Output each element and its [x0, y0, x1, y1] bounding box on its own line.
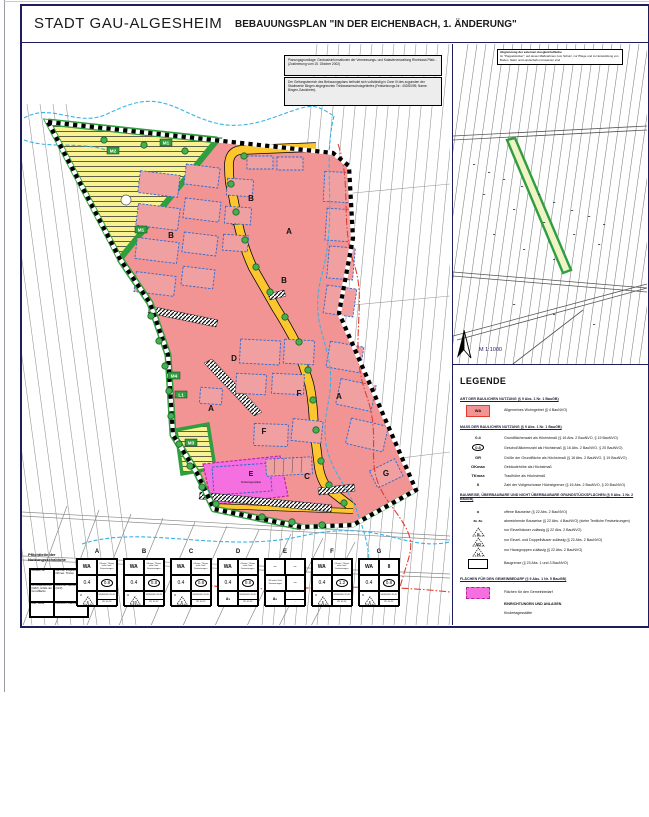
note-trinkwasserschutz: Der Geltungsbereich des Bebauungsplans b… [284, 77, 442, 106]
legend-title: LEGENDE [460, 376, 506, 386]
gemeinbedarf-label: Flächen für den Gemeinbedarf [504, 590, 644, 594]
l1-label: L1 [178, 392, 184, 397]
main-map: M2 M1 M1 M4 L1 M3 B B B A A A D F F C G … [22, 44, 450, 625]
wa-swatch: WA [466, 405, 490, 417]
zone-f2: F [262, 427, 267, 436]
abweichende-bauweise-label: abweichende Bauweise (§ 22 Abs. 4 BauNVO… [504, 519, 644, 523]
gfz-symbol: 0.8 [472, 444, 484, 451]
einzel-doppelhaus-triangle-icon: ED [472, 537, 485, 547]
svg-text:E: E [477, 532, 480, 536]
okmax-label: Gebäudehöhe als Höchstmaß [504, 465, 644, 469]
tkmax-symbol: TKmax [460, 473, 496, 478]
grz-symbol: 0.4 [460, 435, 496, 440]
inset-map-svg [453, 44, 647, 364]
okmax-symbol: OKmax [460, 464, 496, 469]
page-edge-line [4, 0, 5, 692]
haus-triangle: E [317, 596, 329, 605]
m4-label: M4 [171, 373, 178, 378]
note-planungsgrundlage: Planungsgrundlage: Geobasisinformationen… [284, 55, 442, 76]
inset-map: Abgrenzung der externen Ausgleichsfläche… [453, 44, 648, 365]
schablone-col-a: A WAOKmax / TKmax siehe Textl. Festsetzu… [76, 549, 118, 606]
offene-bauweise-symbol: o [460, 509, 496, 514]
kita-legend-label: Kindertagesstätte [504, 611, 644, 615]
svg-text:ED: ED [133, 600, 138, 604]
haus-triangle: E [82, 596, 94, 605]
grz-label: Grundflächenzahl als Höchstmaß (§ 16 Abs… [504, 436, 644, 440]
einzel-doppelhaus-label: nur Einzel- und Doppelhäuser zulässig (§… [504, 538, 644, 542]
svg-text:E: E [87, 600, 90, 604]
legend-section-art: ART DER BAULICHEN NUTZUNG (§ 9 Abs. 1 Nr… [460, 397, 642, 401]
city-title: STADT GAU-ALGESHEIM [34, 15, 222, 32]
title-bar: STADT GAU-ALGESHEIM BEBAUUNGSPLAN "IN DE… [22, 6, 648, 43]
m1-label-2: M1 [138, 227, 145, 232]
m1-label: M1 [163, 140, 170, 145]
vollgeschosse-label: Zahl der Vollgeschosse Höchstgrenze (§ 1… [504, 483, 644, 487]
zone-b2: B [248, 194, 254, 203]
page-top-line [4, 1, 649, 2]
legend-section-gemeinbedarf: FLÄCHEN FÜR DEN GEMEINBEDARF (§ 9 Abs. 1… [460, 577, 642, 581]
hausgruppen-triangle-icon: H [472, 547, 485, 557]
zone-a1: A [286, 227, 292, 236]
haus-triangle: ED [129, 596, 141, 605]
zone-d: D [231, 354, 237, 363]
schablone-col-b: B WAOKmax / TKmax siehe Textl. Festsetzu… [123, 549, 165, 606]
vollgeschosse-symbol: II [460, 482, 496, 487]
gr-label: Größe der Grundfläche als Höchstmaß (§ 1… [504, 456, 644, 460]
baugrenze-swatch [468, 559, 488, 569]
key-bauweise: Bau- weise [30, 602, 54, 617]
plan-frame: STADT GAU-ALGESHEIM BEBAUUNGSPLAN "IN DE… [20, 4, 649, 628]
einzelhaus-label: nur Einzelhäuser zulässig (§ 22 Abs. 2 B… [504, 528, 644, 532]
bebauungsplan-sheet: { "header": { "title": "STADT GAU-ALGESH… [0, 0, 649, 817]
plan-title: BEBAUUNGSPLAN "IN DER EICHENBACH, 1. ÄND… [235, 19, 517, 30]
wa-label: Allgemeines Wohngebiet (§ 4 BauNVO) [504, 408, 644, 412]
gemeinbedarf-swatch [466, 587, 490, 599]
svg-text:H: H [477, 552, 480, 556]
schablone-col-e: E –– GR siehe Textl. Festsetzungen– a₂ –… [264, 549, 306, 606]
hausgruppen-label: nur Hausgruppen zulässig (§ 22 Abs. 2 Ba… [504, 548, 644, 552]
zone-b3: B [281, 276, 287, 285]
svg-text:E: E [369, 600, 372, 604]
scale-label: M 1:1000 [479, 347, 502, 353]
zone-c: C [304, 472, 310, 481]
svg-text:E: E [322, 600, 325, 604]
zone-a3: A [336, 392, 342, 401]
schablone-col-c: C WAOKmax / TKmax siehe Textl. Festsetzu… [170, 549, 212, 606]
zone-g: G [383, 469, 389, 478]
schablone-col-d: D WAOKmax / TKmax siehe Textl. Festsetzu… [217, 549, 259, 606]
legend: LEGENDE ART DER BAULICHEN NUTZUNG (§ 9 A… [453, 365, 648, 625]
key-gebietsart: Gebiets- art [30, 569, 54, 584]
m3-label: M3 [188, 440, 195, 445]
schablone-col-g: G WAII 0.40.8 oE SD/WD/KD 28-45°PD 10-15… [358, 549, 400, 606]
zone-b1: B [168, 231, 174, 240]
zone-a2: A [208, 404, 214, 413]
baugrenze-label: Baugrenze (§ 23 Abs. 1 und 3 BauNVO) [504, 561, 644, 565]
haus-triangle: E [364, 596, 376, 605]
right-column: Abgrenzung der externen Ausgleichsfläche… [452, 44, 648, 625]
zoning-map-svg: M2 M1 M1 M4 L1 M3 B B B A A A D F F C G … [22, 44, 450, 625]
svg-text:E: E [181, 600, 184, 604]
note-ausgleichsflaeche: Abgrenzung der externen Ausgleichsfläche… [497, 49, 623, 65]
haus-triangle: E [176, 596, 188, 605]
legend-section-mass: MASS DER BAULICHEN NUTZUNG (§ 9 Abs. 1 N… [460, 425, 642, 429]
legend-section-bauweise: BAUWEISE, ÜBERBAUBARE UND NICHT ÜBERBAUB… [460, 493, 642, 501]
gfz-label: Geschoßflächenzahl als Höchstmaß (§ 16 A… [504, 446, 644, 450]
zone-e: E [249, 471, 254, 478]
triangle-symbol [121, 195, 131, 205]
einzelhaus-triangle-icon: E [472, 527, 485, 537]
abweichende-bauweise-symbol: a₁ a₂ [460, 518, 496, 523]
svg-text:ED: ED [476, 542, 481, 546]
offene-bauweise-label: offene Bauweise (§ 22 Abs. 2 BauNVO) [504, 510, 644, 514]
zone-f1: F [297, 389, 302, 398]
note-ausgleich-text: Im "Pappelstücker", auf denen Maßnahmen … [500, 54, 619, 62]
m2-label: M2 [110, 148, 117, 153]
tkmax-label: Traufhöhe als Höchstmaß [504, 474, 644, 478]
kita-label: Kindertagesstätte [241, 480, 262, 484]
gr-symbol: GR [460, 455, 496, 460]
einrichtungen-label: EINRICHTUNGEN UND ANLAGEN [504, 602, 644, 606]
key-grz: Grundflächenzahl (GRZ), Größe der Grundf… [30, 584, 54, 602]
schablone-col-f: F WAOKmax / TKmax siehe Textl. Festsetzu… [311, 549, 353, 606]
